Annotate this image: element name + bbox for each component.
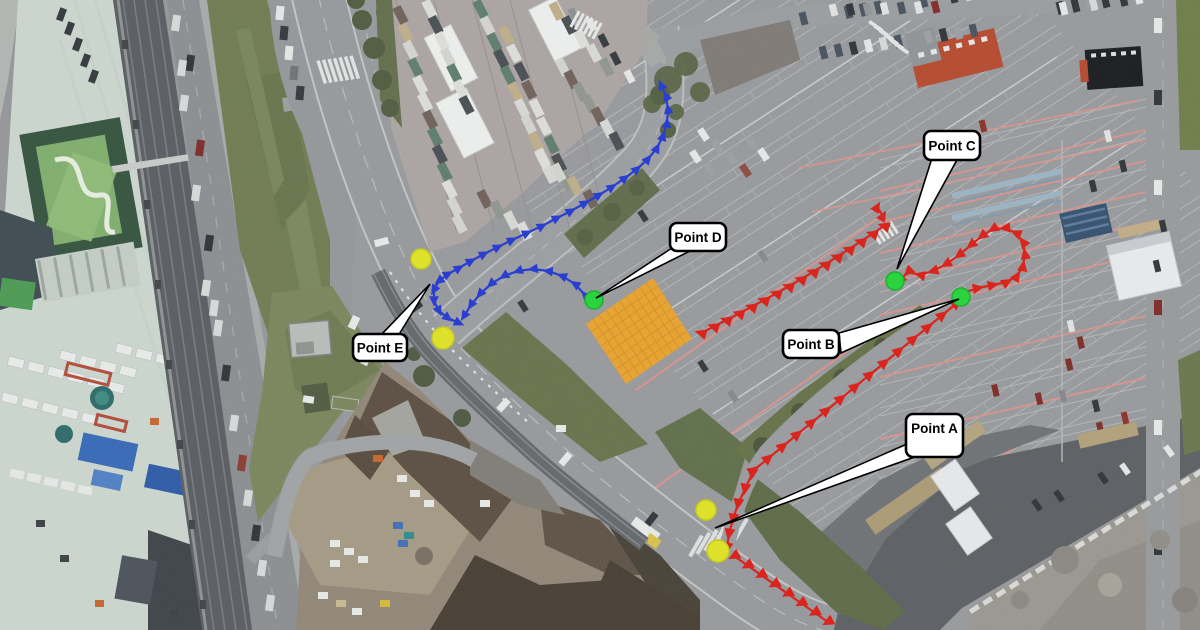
svg-text:Point B: Point B: [787, 337, 834, 352]
svg-text:Point D: Point D: [674, 230, 721, 245]
svg-text:Point E: Point E: [357, 340, 404, 355]
svg-text:Point A: Point A: [911, 421, 958, 436]
svg-text:Point C: Point C: [928, 138, 975, 153]
